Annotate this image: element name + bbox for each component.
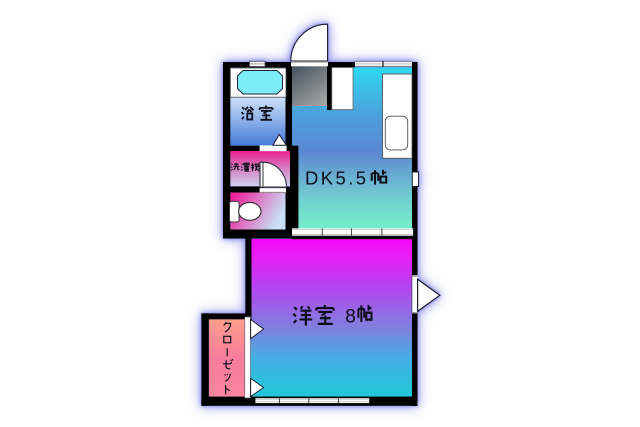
svg-text:DK5.5: DK5.5	[305, 168, 368, 189]
svg-text:8: 8	[345, 307, 356, 328]
